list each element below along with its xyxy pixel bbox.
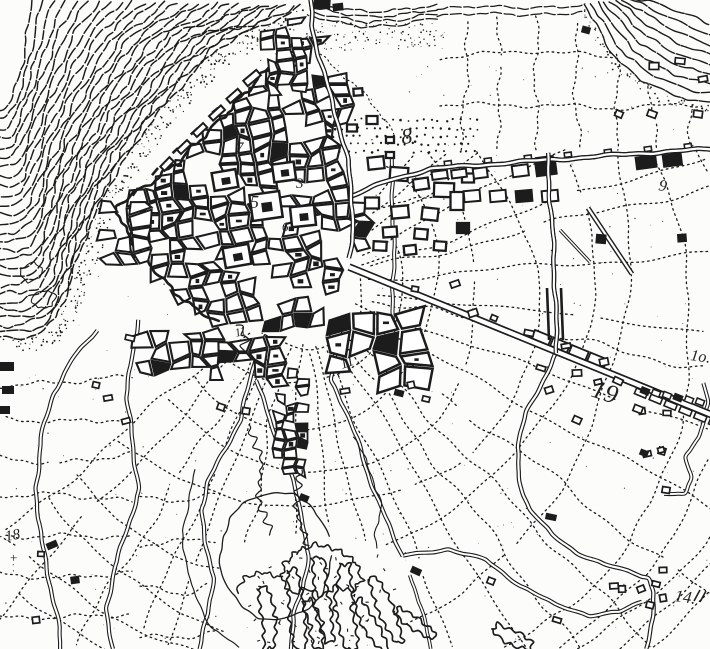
svg-text:1o.: 1o. — [689, 347, 710, 367]
svg-text:14.: 14. — [673, 586, 697, 608]
svg-text:5: 5 — [250, 192, 259, 212]
svg-text:8.: 8. — [400, 122, 419, 149]
svg-text:3: 3 — [295, 176, 304, 192]
svg-text:6: 6 — [282, 219, 289, 234]
svg-text:+: + — [10, 550, 17, 565]
